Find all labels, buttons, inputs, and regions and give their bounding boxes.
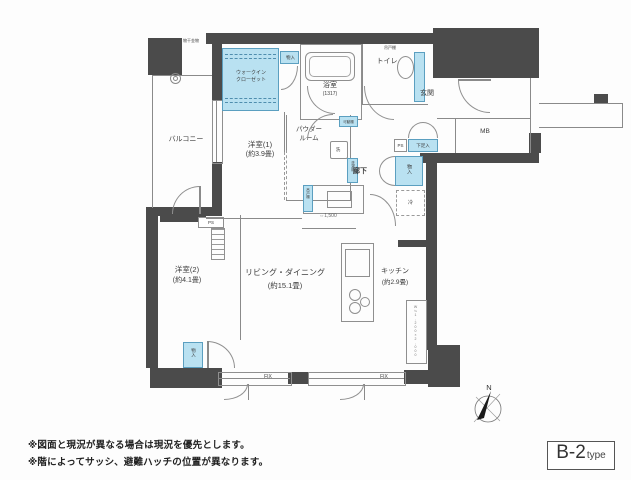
kitchen-size: (約2.9畳) [370, 279, 420, 287]
w2-east-wall [240, 215, 241, 340]
fridge-label: 冷 [397, 200, 424, 206]
ld-label: リビング・ダイニング [243, 268, 327, 278]
western2-size: (約4.1畳) [163, 277, 211, 285]
wall-bottom-right-pier [404, 370, 440, 384]
compass: N [465, 382, 515, 430]
window-swing-arc-left [224, 384, 248, 400]
wic-label-1: ウォークイン [226, 70, 276, 76]
wic-hanger-rod-3 [225, 98, 276, 99]
drain-symbol-inner [173, 76, 178, 81]
fix-label-right: FIX [374, 374, 394, 380]
w2-door-arc [207, 341, 235, 368]
western2-label: 洋室(2) [165, 265, 209, 274]
hall-ld-door-arc [370, 194, 396, 226]
ld-north-line-right [302, 228, 356, 229]
storage-w2-label: 物入 [191, 348, 196, 357]
storage-hall-label: 物入 [406, 164, 411, 174]
passage-line-end [622, 103, 623, 128]
bathtub-inner [309, 56, 351, 77]
wall-west [146, 215, 158, 368]
storage-top-label: 物入 [281, 55, 300, 60]
storage-top: 物入 [280, 51, 299, 64]
floor-plan: 物干金物 バルコニー ウォークイン クローゼット 物入 洋室(1) (約3.9畳… [0, 0, 631, 480]
passage-line-top [539, 103, 623, 104]
kitchen-label: キッチン [375, 268, 415, 276]
window-swing-arc-right [340, 384, 364, 400]
kitchen-sink [345, 249, 370, 277]
passage-line-bottom [539, 127, 623, 128]
stove-burner-2 [360, 297, 370, 307]
balcony-door-arc [172, 186, 200, 214]
wall-top [206, 33, 438, 44]
shoe-cabinet: 下足入 [408, 139, 438, 152]
balcony-outer-line [152, 75, 153, 208]
wic-hanger-rod-4 [225, 102, 276, 103]
ps-w2-label: PS [199, 220, 223, 225]
powder-west-dashed [286, 150, 288, 200]
storage-hall: 物入 [395, 156, 423, 186]
storage-hall-arc-top [379, 156, 395, 171]
counter-shelf-label: 吊戸棚 [306, 188, 310, 199]
entrance-door-leaf [458, 79, 491, 81]
ld-north-line [206, 218, 302, 219]
window-swing-leaf-right [364, 384, 365, 400]
wall-balcony-pier-bottom [212, 162, 222, 210]
ps-hall-box: PS [394, 139, 407, 152]
wall-passage-stub [594, 94, 608, 103]
bathtub [305, 52, 355, 81]
western1-size: (約3.9畳) [238, 151, 282, 159]
kitchen-side-space: W≒1,200×2,000 [406, 300, 427, 364]
genkan-east-line [530, 78, 531, 153]
shoe-cabinet-label: 下足入 [409, 143, 437, 148]
western1-label: 洋室(1) [240, 140, 280, 149]
drain-symbol [170, 73, 181, 84]
ld-size: (約15.1畳) [255, 281, 315, 290]
hall-genkan-door-arc [364, 86, 394, 120]
shoe-door-arc-left [408, 122, 423, 138]
balcony-window-mid [216, 100, 217, 162]
toilet-fixture [397, 56, 414, 79]
storage-hall-arc-bottom [379, 171, 395, 186]
counter-shelf: 吊戸棚 [303, 185, 313, 212]
fridge-space: 冷 [396, 190, 425, 216]
note-line-2: ※階によってサッシ、避難ハッチの位置が異なります。 [28, 454, 268, 468]
wall-top-right-block [433, 28, 539, 78]
laundry-fitting-label: 物干金物 [183, 39, 199, 44]
entrance-label: 玄関 [412, 90, 442, 98]
wall-kitchen-north [398, 240, 427, 247]
balcony-label: バルコニー [163, 136, 209, 144]
w2-door-leaf [207, 341, 209, 368]
hanging-shelf-label: 吊戸棚 [384, 46, 396, 51]
ps-hall-label: PS [395, 143, 406, 148]
note-line-1: ※図面と現況が異なる場合は現況を優先とします。 [28, 437, 250, 451]
storage-top-door-arc [281, 66, 298, 90]
ps-w2-duct-hatch [211, 228, 225, 260]
compass-needle [477, 391, 491, 420]
counter-dimension: ⇔1,500 [308, 213, 348, 219]
type-label-sub: type [587, 450, 606, 461]
wall-balcony-pier-top [212, 44, 222, 100]
wall-top-left-block [148, 38, 182, 75]
wic-label-2: クローゼット [226, 77, 276, 83]
washbasin: 洗 [330, 141, 348, 159]
wall-bottom-left [150, 368, 222, 388]
storage-w2: 物入 [183, 342, 203, 368]
wic-hanger-rod-1 [225, 54, 276, 55]
compass-n-label: N [486, 383, 491, 392]
mb-north-line [437, 118, 530, 119]
balcony-top-line [152, 75, 212, 76]
hallway-label: 廊下 [346, 168, 374, 176]
compass-axis-line [474, 394, 500, 422]
powder-west-wall [286, 115, 287, 150]
window-band-left-mid [218, 378, 290, 379]
wic-hanger-rod-2 [225, 58, 276, 59]
washbasin-label: 洗 [331, 147, 345, 152]
mb-label: MB [465, 128, 505, 136]
window-swing-leaf-left [248, 384, 249, 400]
movable-shelf: 可動棚 [339, 116, 358, 127]
kitchen-dimension: W≒1,200×2,000 [413, 305, 417, 357]
entrance-door-arc [458, 80, 490, 113]
w1-east-wall [284, 112, 285, 152]
type-box: B-2type [547, 441, 615, 470]
fix-label-left: FIX [258, 374, 278, 380]
wall-east [426, 160, 437, 350]
counter-desk [327, 191, 352, 208]
movable-shelf-label: 可動棚 [340, 120, 357, 124]
toilet-west-wall [362, 44, 363, 105]
balcony-door-leaf [199, 186, 201, 214]
mb-west-line [455, 118, 456, 153]
shoe-door-arc-right [423, 122, 438, 138]
stove-burner-3 [349, 302, 361, 314]
type-label-main: B-2 [556, 442, 586, 464]
wall-mb-south [420, 153, 539, 163]
stove-burner-1 [349, 289, 361, 301]
